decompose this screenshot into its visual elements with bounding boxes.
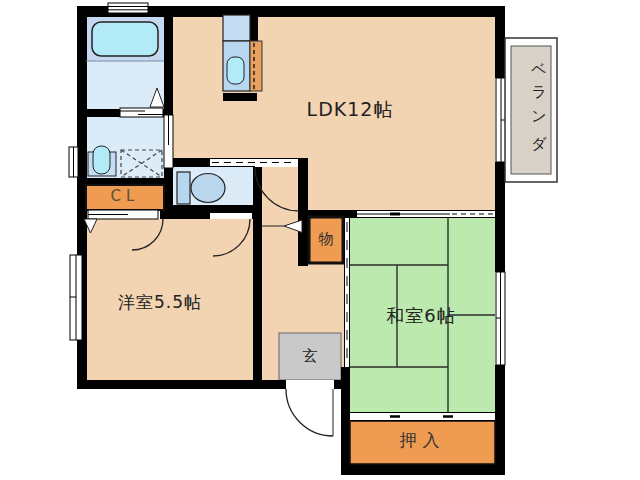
entrance-door-arc	[286, 389, 333, 436]
kitchen-counter-extension	[250, 41, 262, 91]
toilet-icon	[177, 172, 225, 204]
bathtub-icon	[92, 22, 158, 56]
western-room-label: 洋室5.5帖	[75, 294, 245, 311]
bathroom-door	[120, 108, 163, 117]
closet-sliding-door	[88, 210, 158, 219]
wall-western-north	[164, 213, 210, 219]
entrance-label: 玄	[279, 349, 341, 364]
wall-kitchen-stub	[250, 15, 258, 41]
entrance-opening	[286, 380, 334, 389]
washbasin-bowl-icon	[93, 146, 110, 174]
ldk-label: LDK12帖	[260, 100, 440, 119]
wall-bath-ldk	[164, 6, 173, 115]
wall-right	[495, 365, 505, 475]
wall-bath-washroom	[77, 109, 120, 117]
bathroom-window	[108, 3, 148, 13]
wall-right	[495, 162, 505, 272]
storage-label: 物	[307, 232, 345, 247]
ldk-hall-opening	[210, 158, 298, 167]
washroom-window	[69, 147, 78, 177]
wall-toilet-south	[164, 205, 262, 213]
washroom-sliding-door	[164, 115, 173, 168]
wall-washroom-closet	[77, 178, 164, 185]
japanese-room-label: 和室6帖	[336, 307, 506, 325]
ldk-tatami-sliding-doors	[357, 210, 495, 218]
futon-closet-fusuma	[350, 412, 495, 421]
closet-label: CL	[86, 189, 164, 204]
wall-kitchen-stub	[223, 93, 257, 101]
western-door-opening	[210, 213, 252, 219]
wall-hall-west	[253, 213, 262, 389]
wall-bottom-right	[341, 464, 505, 475]
floor-plan: LDK12帖 洋室5.5帖 和室6帖 CL 物 玄 押入 ベランダ	[0, 0, 640, 480]
wall-closet-stub	[77, 210, 86, 219]
veranda-label: ベランダ	[516, 52, 546, 172]
futon-closet-label: 押入	[350, 432, 495, 449]
kitchen-sink-icon	[227, 57, 244, 84]
wall-tatami-west	[341, 367, 350, 464]
wall-right	[495, 6, 505, 78]
kitchen-counter-icon	[223, 15, 250, 91]
